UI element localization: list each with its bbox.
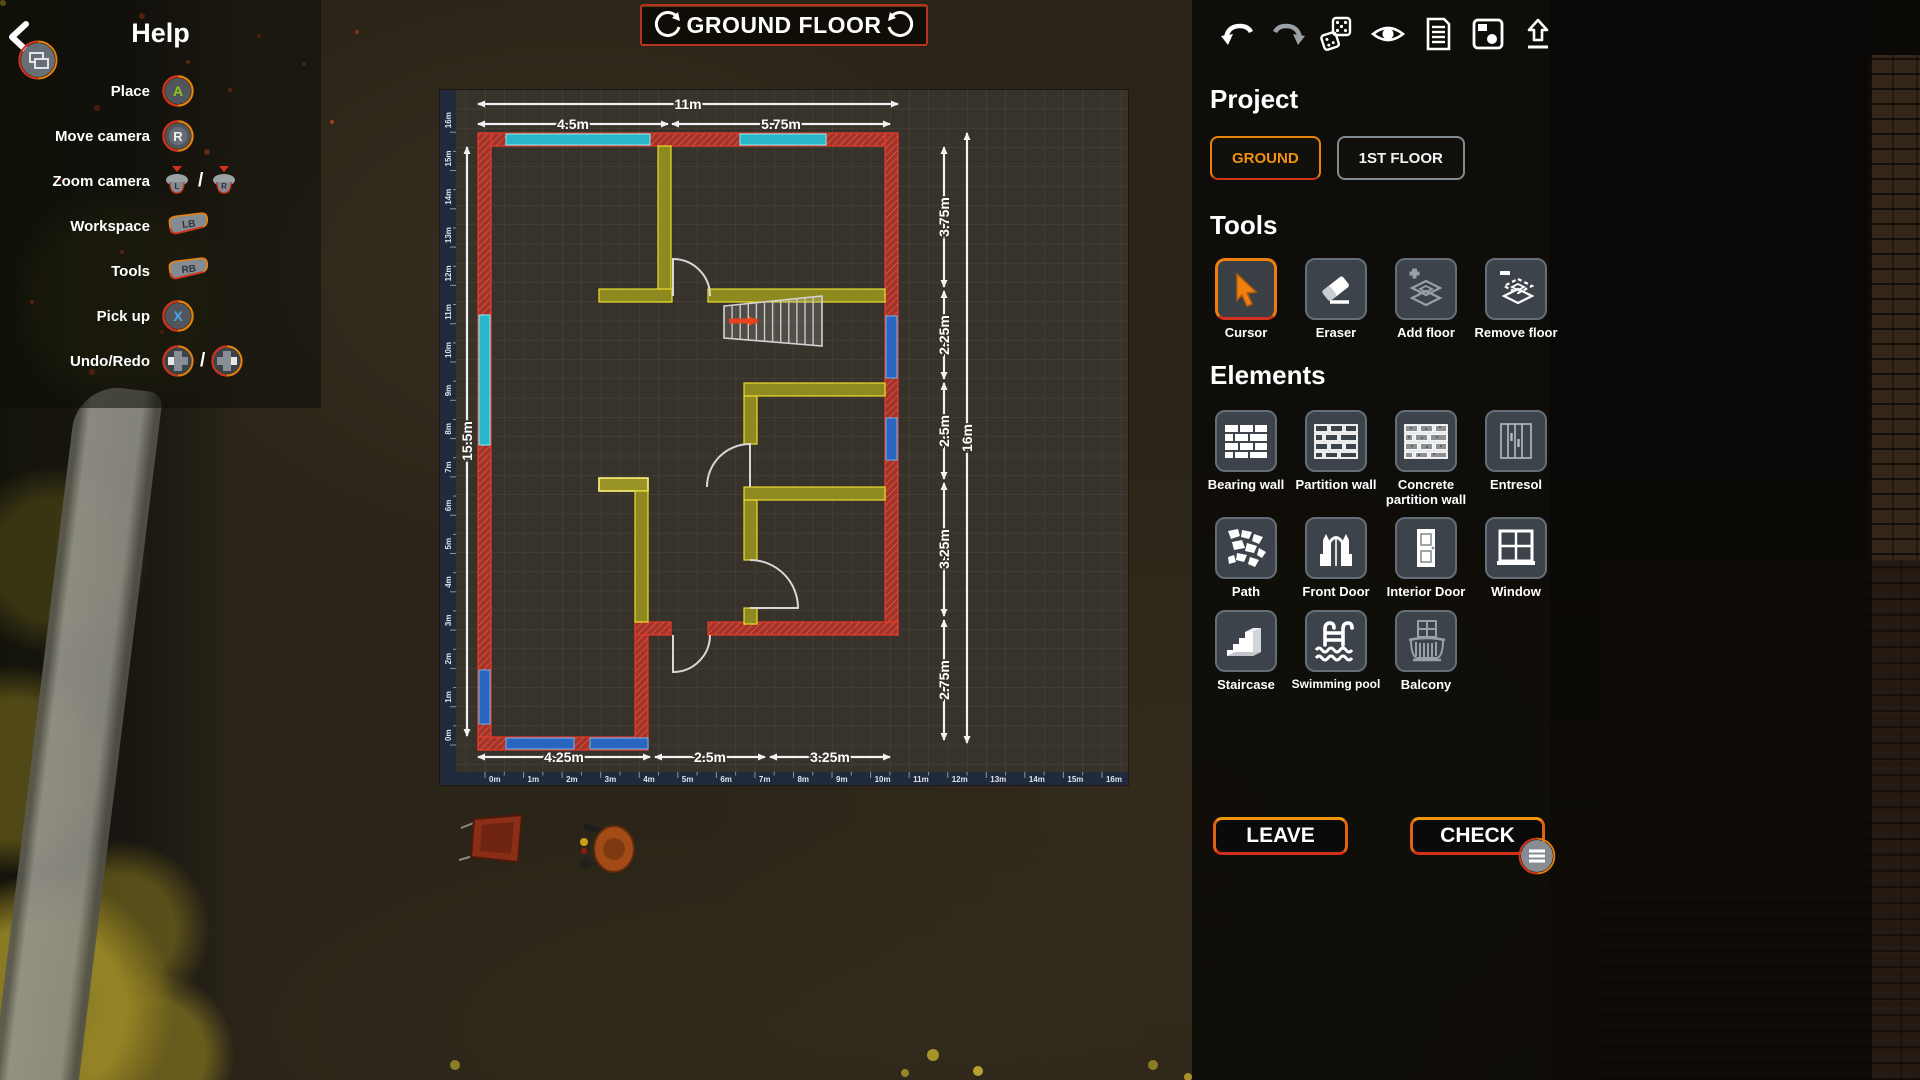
partition-wall-button[interactable] <box>1305 410 1367 472</box>
svg-text:X: X <box>173 308 183 324</box>
floor-title-bar: GROUND FLOOR <box>640 4 928 46</box>
partition-b <box>744 383 885 396</box>
slash-separator: / <box>200 350 205 372</box>
cursor-icon <box>1226 269 1266 309</box>
svg-text:14m: 14m <box>1029 775 1045 784</box>
help-label: Place <box>0 83 162 100</box>
floor-title-text: GROUND FLOOR <box>686 12 881 39</box>
svg-text:15m: 15m <box>1067 775 1083 784</box>
partition-v1a <box>744 396 757 444</box>
balcony-button[interactable] <box>1395 610 1457 672</box>
eraser-icon <box>1316 269 1356 309</box>
help-row-pick-up: Pick up X <box>0 298 321 334</box>
element-label: Entresol <box>1464 478 1568 493</box>
add-floor-icon <box>1404 267 1448 311</box>
help-title: Help <box>0 18 321 49</box>
dim-label: 15.5m <box>459 421 475 461</box>
help-label: Zoom camera <box>0 173 162 190</box>
svg-text:6m: 6m <box>444 500 453 512</box>
gamepad-a-button-icon: A <box>162 75 194 107</box>
element-label: Concrete partition wall <box>1374 478 1478 507</box>
element-label: Partition wall <box>1284 478 1388 493</box>
visibility-button[interactable] <box>1370 16 1406 52</box>
swimming-pool-icon <box>1313 619 1359 663</box>
rotate-ccw-button[interactable] <box>652 9 684 41</box>
leave-button[interactable]: LEAVE <box>1213 817 1348 855</box>
element-label: Front Door <box>1284 585 1388 600</box>
svg-text:13m: 13m <box>990 775 1006 784</box>
cursor-tool-button[interactable] <box>1215 258 1277 320</box>
help-row-move-camera: Move camera R <box>0 118 321 154</box>
svg-text:13m: 13m <box>444 227 453 243</box>
dim-label: 2.75m <box>936 660 952 700</box>
top-toolbar <box>1220 16 1556 52</box>
element-interior-door: Interior Door <box>1381 517 1471 600</box>
element-balcony: Balcony <box>1381 610 1471 693</box>
floor-switcher: GROUND 1ST FLOOR <box>1210 136 1465 180</box>
bearing-wall-button[interactable] <box>1215 410 1277 472</box>
help-label: Move camera <box>0 128 162 145</box>
balcony-icon <box>1403 618 1449 664</box>
svg-text:1m: 1m <box>528 775 540 784</box>
tool-add-floor: Add floor <box>1381 258 1471 341</box>
window-left-tall <box>479 315 490 445</box>
staircase-button[interactable] <box>1215 610 1277 672</box>
svg-text:16m: 16m <box>444 112 453 128</box>
export-button[interactable] <box>1520 16 1556 52</box>
svg-text:6m: 6m <box>720 775 732 784</box>
dim-label: 2.25m <box>936 315 952 355</box>
window-bottom-2 <box>590 738 648 749</box>
element-partition-wall: Partition wall <box>1291 410 1381 507</box>
window-icon <box>1494 527 1538 569</box>
tool-cursor: Cursor <box>1201 258 1291 341</box>
element-entresol: Entresol <box>1471 410 1561 507</box>
front-door-button[interactable] <box>1305 517 1367 579</box>
redo-button[interactable] <box>1270 16 1306 52</box>
slash-separator: / <box>198 170 203 192</box>
cement-mixer <box>572 815 650 881</box>
help-label: Undo/Redo <box>0 353 162 370</box>
floor-button-ground[interactable]: GROUND <box>1210 136 1321 180</box>
svg-text:7m: 7m <box>444 461 453 473</box>
menu-button[interactable] <box>1518 837 1556 875</box>
element-bearing-wall: Bearing wall <box>1201 410 1291 507</box>
help-label: Tools <box>0 263 162 280</box>
partition-wall-icon <box>1313 423 1359 459</box>
partition-v1b <box>744 500 757 560</box>
help-row-zoom-camera: Zoom camera L / R <box>0 163 321 199</box>
window-right-2 <box>886 418 897 460</box>
help-row-place: Place A <box>0 73 321 109</box>
wall-right <box>885 133 898 635</box>
eye-icon <box>1373 28 1403 40</box>
tools-grid: Cursor Eraser <box>1201 258 1561 351</box>
svg-text:0m: 0m <box>444 729 453 741</box>
svg-text:2m: 2m <box>566 775 578 784</box>
help-label: Workspace <box>0 218 162 235</box>
gamepad-x-button-icon: X <box>162 300 194 332</box>
element-window: Window <box>1471 517 1561 600</box>
partition-l-vertical <box>635 491 648 622</box>
grid-lines <box>456 90 1128 772</box>
svg-text:3m: 3m <box>605 775 617 784</box>
rotate-cw-button[interactable] <box>884 9 916 41</box>
partition-l-stub <box>599 478 648 491</box>
svg-text:9m: 9m <box>836 775 848 784</box>
dim-label: 2.5m <box>936 415 952 447</box>
svg-text:2m: 2m <box>444 653 453 665</box>
tool-remove-floor: Remove floor <box>1471 258 1561 341</box>
save-floppy-icon <box>1474 20 1502 48</box>
elements-heading: Elements <box>1210 360 1326 391</box>
editor-side-panel: Project GROUND 1ST FLOOR Tools Cursor <box>1192 0 1872 1080</box>
eraser-tool-button[interactable] <box>1305 258 1367 320</box>
element-front-door: Front Door <box>1291 517 1381 600</box>
entresol-button[interactable] <box>1485 410 1547 472</box>
randomize-button[interactable] <box>1320 16 1356 52</box>
left-trigger-icon: L <box>162 165 192 197</box>
svg-text:10m: 10m <box>444 342 453 358</box>
wheelbarrow <box>458 810 534 872</box>
svg-text:9m: 9m <box>444 385 453 397</box>
entresol-icon <box>1496 421 1536 461</box>
svg-text:14m: 14m <box>444 189 453 205</box>
element-label: Bearing wall <box>1194 478 1298 493</box>
element-label: Swimming pool <box>1284 678 1388 691</box>
staircase-icon <box>1223 620 1269 662</box>
partition-c <box>744 487 885 500</box>
svg-text:7m: 7m <box>759 775 771 784</box>
element-path: Path <box>1201 517 1291 600</box>
floor-button-1st[interactable]: 1ST FLOOR <box>1337 136 1465 180</box>
svg-text:12m: 12m <box>952 775 968 784</box>
svg-text:10m: 10m <box>875 775 891 784</box>
dice-icon <box>1321 18 1350 50</box>
svg-text:5m: 5m <box>682 775 694 784</box>
element-concrete-partition-wall: Concrete partition wall <box>1381 410 1471 507</box>
element-label: Balcony <box>1374 678 1478 693</box>
tool-label: Eraser <box>1284 326 1388 341</box>
wall-bottom-right-b <box>708 622 898 635</box>
add-floor-tool-button[interactable] <box>1395 258 1457 320</box>
dim-label: 3.75m <box>936 197 952 237</box>
element-swimming-pool: Swimming pool <box>1291 610 1381 693</box>
interior-door-button[interactable] <box>1395 517 1457 579</box>
help-row-tools: Tools RB <box>0 253 321 289</box>
svg-text:5m: 5m <box>444 538 453 550</box>
svg-text:15m: 15m <box>444 150 453 166</box>
dim-label: 3.25m <box>810 749 850 765</box>
svg-text:3m: 3m <box>444 615 453 627</box>
document-icon <box>1428 19 1449 49</box>
save-button[interactable] <box>1470 16 1506 52</box>
dim-label: 4.5m <box>557 116 589 132</box>
right-bumper-icon: RB <box>162 255 212 287</box>
svg-text:11m: 11m <box>444 304 453 320</box>
tool-label: Cursor <box>1194 326 1298 341</box>
window-bottom-1 <box>506 738 574 749</box>
remove-floor-tool-button[interactable] <box>1485 258 1547 320</box>
wall-mid-vertical <box>635 622 648 750</box>
window-top-1 <box>506 134 650 145</box>
right-stick-icon: R <box>162 120 194 152</box>
element-label: Staircase <box>1194 678 1298 693</box>
remove-floor-icon <box>1494 267 1538 311</box>
svg-text:1m: 1m <box>444 691 453 703</box>
dim-label: 11m <box>674 96 701 112</box>
svg-text:4m: 4m <box>643 775 655 784</box>
tool-eraser: Eraser <box>1291 258 1381 341</box>
wall-bottom-right-a <box>635 622 671 635</box>
svg-text:8m: 8m <box>444 423 453 435</box>
right-trigger-icon: R <box>209 165 239 197</box>
element-label: Interior Door <box>1374 585 1478 600</box>
dim-label: 3.25m <box>936 529 952 569</box>
element-label: Path <box>1194 585 1298 600</box>
svg-text:LB: LB <box>182 218 197 231</box>
dpad-right-icon <box>211 345 243 377</box>
swimming-pool-button[interactable] <box>1305 610 1367 672</box>
svg-text:0m: 0m <box>489 775 501 784</box>
svg-text:16m: 16m <box>1106 775 1122 784</box>
svg-text:4m: 4m <box>444 576 453 588</box>
tools-heading: Tools <box>1210 210 1277 241</box>
elements-grid: Bearing wall Partition wall <box>1201 410 1561 702</box>
svg-text:11m: 11m <box>913 775 929 784</box>
dim-label: 2.5m <box>694 749 726 765</box>
front-door-icon <box>1314 526 1358 570</box>
partition-v1c <box>744 608 757 624</box>
svg-text:8m: 8m <box>797 775 809 784</box>
window-left-low <box>479 670 490 724</box>
project-heading: Project <box>1210 84 1298 115</box>
concrete-partition-wall-button[interactable] <box>1395 410 1457 472</box>
tool-label: Add floor <box>1374 326 1478 341</box>
game-screen: 0m1m2m3m4m5m6m7m8m9m10m11m12m13m14m15m16… <box>0 0 1920 1080</box>
bearing-wall-icon <box>1223 423 1269 459</box>
help-row-workspace: Workspace LB <box>0 208 321 244</box>
concrete-partition-wall-icon <box>1403 423 1449 459</box>
window-right-1 <box>886 316 897 378</box>
partition-top-vertical <box>658 146 671 302</box>
path-button[interactable] <box>1215 517 1277 579</box>
notes-button[interactable] <box>1420 16 1456 52</box>
partition-a-left <box>599 289 672 302</box>
svg-text:RB: RB <box>181 263 197 276</box>
element-label: Window <box>1464 585 1568 600</box>
svg-text:R: R <box>221 182 227 191</box>
dim-label: 5.75m <box>761 116 801 132</box>
svg-text:L: L <box>175 182 180 191</box>
window-top-2 <box>740 134 826 145</box>
dpad-left-icon <box>162 345 194 377</box>
window-button[interactable] <box>1485 517 1547 579</box>
dim-label: 4.25m <box>544 749 584 765</box>
interior-door-icon <box>1406 526 1446 570</box>
element-staircase: Staircase <box>1201 610 1291 693</box>
svg-text:R: R <box>173 129 183 144</box>
svg-text:A: A <box>173 83 183 99</box>
path-stones-icon <box>1224 527 1268 569</box>
left-bumper-icon: LB <box>162 210 212 242</box>
help-label: Pick up <box>0 308 162 325</box>
undo-button[interactable] <box>1220 16 1256 52</box>
floor-plan-canvas[interactable]: 0m1m2m3m4m5m6m7m8m9m10m11m12m13m14m15m16… <box>440 90 1128 785</box>
tool-label: Remove floor <box>1464 326 1568 341</box>
svg-text:12m: 12m <box>444 265 453 281</box>
upload-icon <box>1528 20 1548 47</box>
help-panel: Help Place A Move camera R <box>0 0 321 408</box>
help-row-undo-redo: Undo/Redo / <box>0 343 321 379</box>
dim-label: 16m <box>959 424 975 452</box>
hamburger-icon <box>1529 851 1545 861</box>
